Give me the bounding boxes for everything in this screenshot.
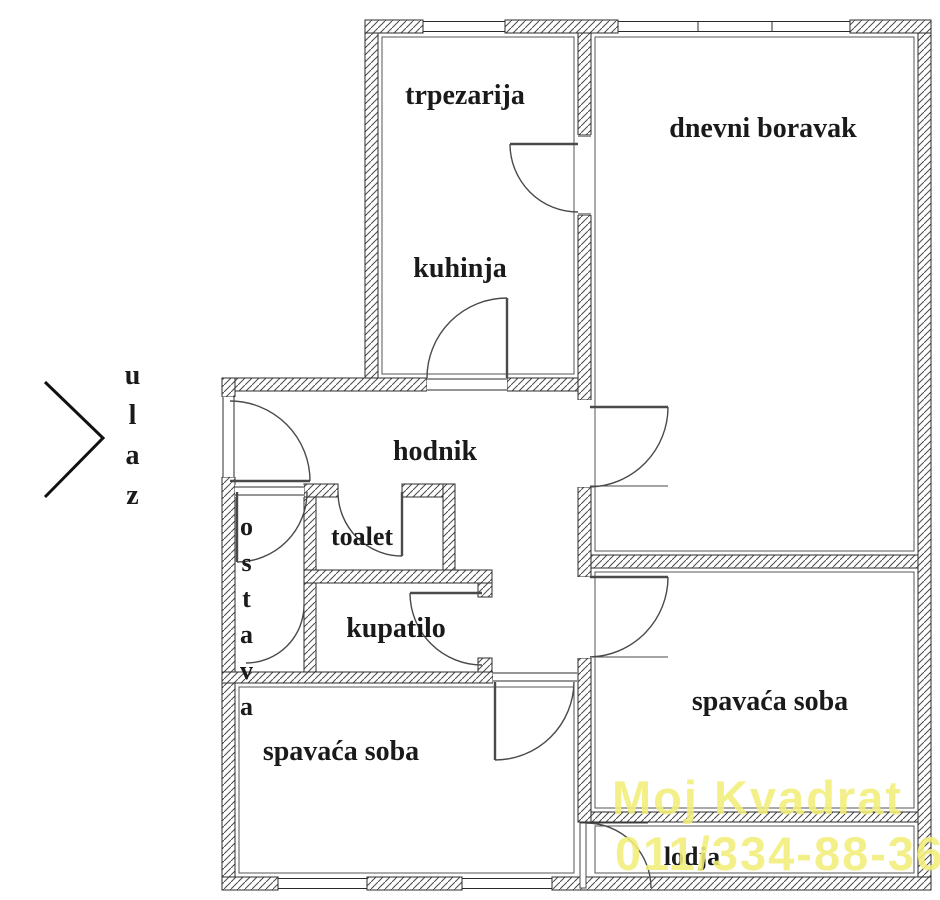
wall-toalet-right	[443, 484, 455, 570]
wall-left-lower-top	[222, 378, 235, 397]
wall-central-1	[578, 33, 591, 135]
wall-central-4	[578, 658, 591, 822]
wall-right	[918, 33, 931, 877]
wall-central-3	[578, 487, 591, 577]
label-kuhinja: kuhinja	[413, 253, 506, 284]
label-ostava: ostava	[231, 512, 261, 728]
wall-top-3	[850, 20, 931, 33]
door-kuhinja	[427, 298, 507, 378]
door-entrance	[230, 401, 310, 481]
floor-plan: trpezarija dnevni boravak kuhinja hodnik…	[0, 0, 940, 900]
door-openings	[222, 135, 592, 684]
wall-divider-dnevni	[591, 555, 918, 568]
label-spavaca-soba-left: spavaća soba	[263, 736, 419, 767]
window-bedroom-left-1	[278, 879, 367, 889]
watermark-line2: 011/334-88-36	[615, 826, 940, 881]
wall-bedroom-left-top	[222, 672, 493, 683]
wall-ostava-right	[304, 497, 316, 672]
wall-left-upper	[365, 33, 378, 378]
door-trpezarija	[510, 144, 578, 212]
wall-bottom-1	[222, 877, 278, 890]
wall-top-2	[505, 20, 618, 33]
label-ulaz: ulaz	[116, 360, 148, 520]
label-trpezarija: trpezarija	[405, 80, 525, 111]
door-bedroom-right	[590, 577, 668, 657]
wall-toalet-top-1	[304, 484, 338, 497]
door-dnevni	[590, 407, 668, 487]
wall-central-2	[578, 215, 591, 400]
wall-kupatilo-right-1	[478, 583, 492, 597]
entrance-arrow-icon	[45, 382, 103, 497]
wall-bottom-2	[367, 877, 462, 890]
label-spavaca-soba-right: spavaća soba	[692, 686, 848, 717]
wall-kupatilo-top	[304, 570, 492, 583]
label-hodnik: hodnik	[393, 436, 477, 467]
label-kupatilo: kupatilo	[346, 613, 446, 644]
watermark-line1: Moj Kvadrat	[612, 770, 903, 825]
window-trpezarija	[423, 22, 505, 32]
label-dnevni-boravak: dnevni boravak	[669, 113, 857, 144]
window-bedroom-left-2	[462, 879, 552, 889]
wall-hodnik-top-1	[235, 378, 427, 391]
window-dnevni	[618, 22, 850, 32]
door-bedroom-left	[495, 682, 574, 760]
label-toalet: toalet	[331, 522, 393, 551]
wall-top-1	[365, 20, 423, 33]
